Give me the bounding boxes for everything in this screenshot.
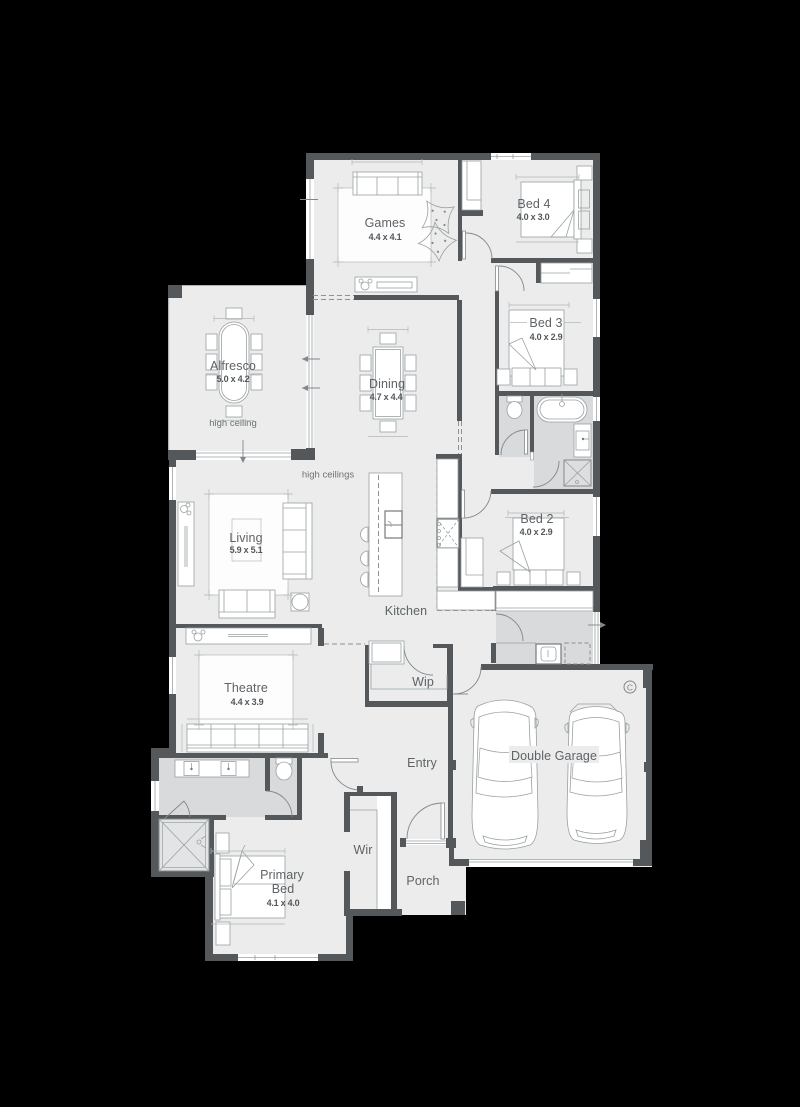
svg-text:4.0 x 2.9: 4.0 x 2.9 — [520, 527, 553, 537]
svg-text:C: C — [627, 683, 633, 693]
svg-text:4.4 x 3.9: 4.4 x 3.9 — [231, 697, 264, 707]
svg-text:Kitchen: Kitchen — [385, 604, 427, 618]
svg-text:4.4 x 4.1: 4.4 x 4.1 — [369, 232, 402, 242]
svg-text:Primary: Primary — [260, 868, 304, 882]
svg-text:Living: Living — [229, 531, 262, 545]
svg-text:Porch: Porch — [406, 874, 439, 888]
svg-text:5.0 x 4.2: 5.0 x 4.2 — [217, 374, 250, 384]
svg-text:Theatre: Theatre — [224, 681, 268, 695]
svg-text:Games: Games — [365, 216, 406, 230]
svg-text:high ceilings: high ceilings — [302, 470, 355, 481]
svg-text:Bed: Bed — [272, 882, 295, 896]
svg-text:Bed 3: Bed 3 — [529, 316, 562, 330]
svg-text:4.1 x 4.0: 4.1 x 4.0 — [267, 898, 300, 908]
svg-text:4.0 x 3.0: 4.0 x 3.0 — [517, 212, 550, 222]
svg-text:Entry: Entry — [407, 756, 437, 770]
svg-text:high ceiling: high ceiling — [209, 418, 257, 429]
svg-text:4.0 x 2.9: 4.0 x 2.9 — [530, 332, 563, 342]
svg-text:Wip: Wip — [412, 675, 434, 689]
svg-text:Dining: Dining — [369, 377, 405, 391]
svg-text:5.9 x 5.1: 5.9 x 5.1 — [230, 545, 263, 555]
svg-text:Wir: Wir — [353, 843, 372, 857]
svg-text:Bed 2: Bed 2 — [520, 512, 553, 526]
svg-text:Bed 4: Bed 4 — [517, 197, 550, 211]
svg-text:Alfresco: Alfresco — [210, 359, 256, 373]
svg-text:Double Garage: Double Garage — [511, 749, 597, 763]
svg-text:4.7 x 4.4: 4.7 x 4.4 — [370, 392, 403, 402]
